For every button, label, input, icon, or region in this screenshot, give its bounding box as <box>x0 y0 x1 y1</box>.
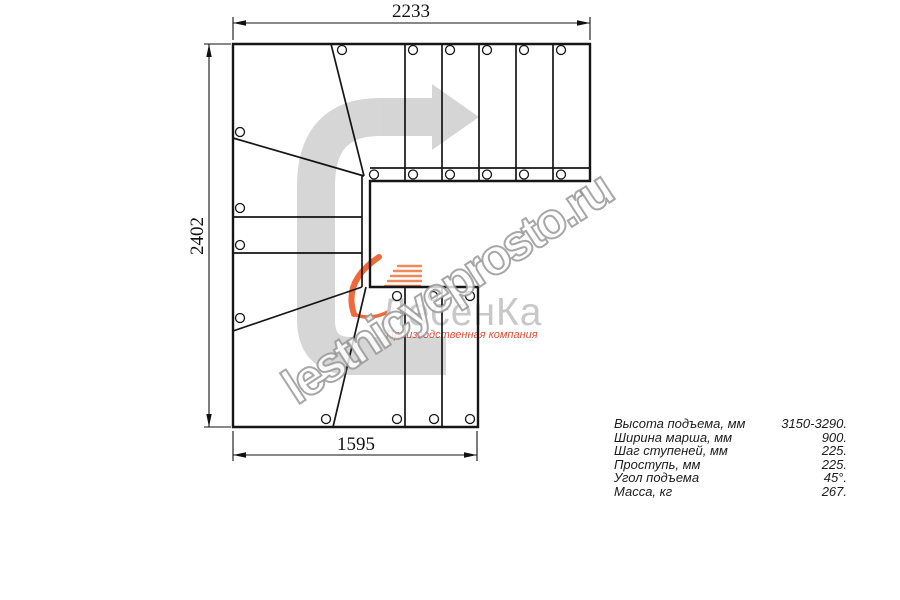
dimension-left-label: 2402 <box>187 217 208 255</box>
spec-label: Проступь, мм <box>614 458 700 472</box>
spec-label: Шаг ступеней, мм <box>614 444 728 458</box>
spec-value: 267. <box>822 485 847 499</box>
direction-arrowhead <box>432 84 479 150</box>
spec-label: Угол подъема <box>614 471 699 485</box>
company-logo: ЛесенКа Производственная компания <box>351 257 542 341</box>
dimension-bottom-label: 1595 <box>337 434 375 455</box>
spec-row: Масса, кг267. <box>614 485 847 499</box>
spec-row: Шаг ступеней, мм225. <box>614 444 847 458</box>
spec-label: Высота подъема, мм <box>614 417 745 431</box>
spec-value: 3150-3290. <box>781 417 847 431</box>
spec-row: Ширина марша, мм900. <box>614 431 847 445</box>
dimension-lines <box>204 17 590 461</box>
dimension-top-label: 2233 <box>392 1 430 22</box>
drawing-canvas: ЛесенКа Производственная компания <box>0 0 900 600</box>
spec-label: Масса, кг <box>614 485 672 499</box>
stair-plan-drawing: ЛесенКа Производственная компания <box>0 0 900 600</box>
spec-row: Высота подъема, мм3150-3290. <box>614 417 847 431</box>
spec-value: 225. <box>822 444 847 458</box>
spec-row: Проступь, мм225. <box>614 458 847 472</box>
spec-label: Ширина марша, мм <box>614 431 732 445</box>
spec-table: Высота подъема, мм3150-3290.Ширина марша… <box>614 417 847 499</box>
spec-value: 900. <box>822 431 847 445</box>
spec-row: Угол подъема45°. <box>614 471 847 485</box>
spec-value: 45°. <box>824 471 847 485</box>
spec-value: 225. <box>822 458 847 472</box>
